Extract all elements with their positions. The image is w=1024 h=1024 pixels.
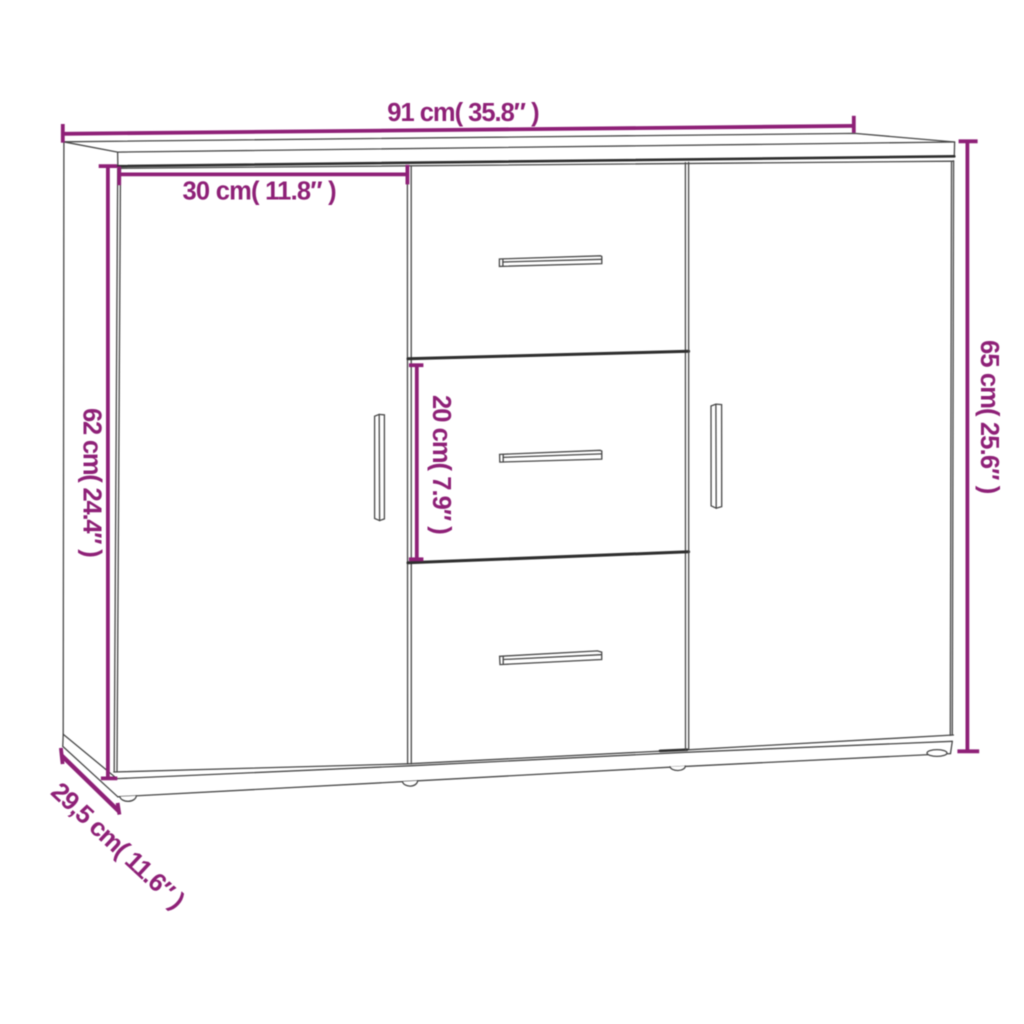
svg-text:62 cm( 24.4″ ): 62 cm( 24.4″ ): [78, 408, 106, 557]
svg-text:20 cm( 7.9″ ): 20 cm( 7.9″ ): [427, 395, 455, 534]
svg-text:30 cm( 11.8″ ): 30 cm( 11.8″ ): [183, 178, 337, 206]
svg-text:65 cm( 25.6″ ): 65 cm( 25.6″ ): [975, 340, 1003, 494]
svg-text:29,5 cm( 11.6″ ): 29,5 cm( 11.6″ ): [45, 777, 189, 914]
svg-text:91 cm( 35.8″ ): 91 cm( 35.8″ ): [387, 99, 539, 127]
